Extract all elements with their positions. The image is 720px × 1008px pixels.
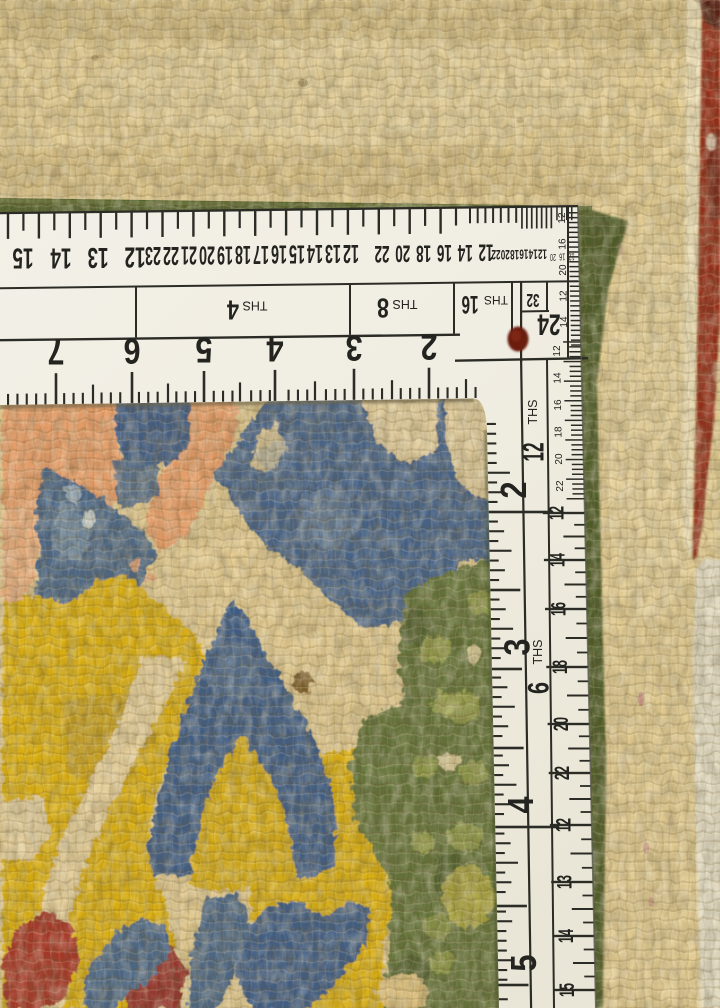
svg-text:15: 15: [556, 983, 579, 997]
svg-text:22: 22: [551, 766, 574, 780]
svg-text:12: 12: [545, 506, 568, 520]
svg-text:THS: THS: [531, 640, 545, 665]
svg-text:22: 22: [555, 480, 566, 492]
svg-text:14: 14: [307, 239, 323, 269]
svg-text:12: 12: [518, 443, 551, 462]
svg-text:6: 6: [124, 331, 141, 372]
svg-text:32: 32: [527, 290, 540, 310]
svg-text:15: 15: [13, 242, 34, 274]
svg-text:18: 18: [416, 239, 431, 266]
svg-text:12: 12: [552, 818, 575, 832]
svg-text:20: 20: [501, 247, 510, 263]
svg-text:20: 20: [199, 241, 215, 271]
svg-text:4: 4: [227, 295, 239, 326]
svg-text:16: 16: [519, 247, 528, 263]
svg-text:5: 5: [196, 330, 213, 371]
svg-text:8: 8: [377, 293, 389, 324]
svg-text:12: 12: [343, 239, 359, 269]
svg-text:16: 16: [271, 240, 287, 270]
svg-text:16: 16: [559, 251, 565, 262]
svg-text:16: 16: [548, 602, 571, 616]
svg-text:20: 20: [554, 453, 565, 465]
svg-text:14: 14: [555, 929, 578, 943]
svg-text:12: 12: [552, 345, 563, 357]
svg-text:22: 22: [491, 247, 500, 263]
svg-text:12: 12: [538, 246, 547, 262]
svg-text:THS: THS: [243, 299, 268, 313]
svg-text:13: 13: [554, 875, 577, 889]
svg-text:14: 14: [457, 239, 472, 266]
svg-text:15: 15: [289, 239, 305, 269]
svg-text:THS: THS: [526, 400, 540, 425]
svg-text:2: 2: [493, 482, 534, 499]
svg-text:14: 14: [51, 241, 72, 273]
svg-text:14: 14: [559, 316, 570, 328]
svg-text:5: 5: [503, 955, 544, 972]
svg-text:12: 12: [557, 212, 568, 224]
svg-text:24: 24: [537, 308, 560, 341]
svg-text:20: 20: [558, 264, 569, 276]
svg-text:13: 13: [88, 241, 109, 273]
svg-text:4: 4: [500, 797, 541, 814]
svg-text:20: 20: [550, 717, 573, 731]
svg-text:21: 21: [181, 241, 197, 271]
svg-text:7: 7: [48, 332, 65, 373]
svg-text:16: 16: [557, 238, 568, 250]
svg-text:16: 16: [462, 290, 479, 318]
svg-text:4: 4: [267, 329, 284, 370]
svg-text:23: 23: [145, 241, 161, 271]
svg-text:18: 18: [235, 240, 251, 270]
svg-text:17: 17: [253, 240, 269, 270]
svg-text:16: 16: [553, 399, 564, 411]
svg-text:12: 12: [559, 290, 570, 302]
svg-text:18: 18: [549, 660, 572, 674]
svg-text:14: 14: [546, 553, 569, 567]
svg-text:14: 14: [552, 372, 563, 384]
svg-text:20: 20: [395, 240, 410, 267]
svg-text:22: 22: [163, 241, 179, 271]
svg-text:12: 12: [125, 240, 146, 272]
svg-text:20: 20: [550, 251, 556, 262]
svg-text:12: 12: [479, 239, 494, 266]
svg-text:13: 13: [325, 239, 341, 269]
svg-text:3: 3: [346, 328, 363, 369]
svg-text:16: 16: [437, 239, 452, 266]
svg-text:18: 18: [510, 247, 519, 263]
svg-text:THS: THS: [484, 293, 508, 307]
svg-text:14: 14: [529, 247, 538, 263]
svg-text:22: 22: [375, 240, 390, 267]
svg-text:19: 19: [217, 240, 233, 270]
svg-text:2: 2: [421, 327, 438, 368]
svg-text:THS: THS: [393, 297, 418, 311]
svg-text:6: 6: [523, 682, 556, 694]
svg-text:18: 18: [554, 426, 565, 438]
